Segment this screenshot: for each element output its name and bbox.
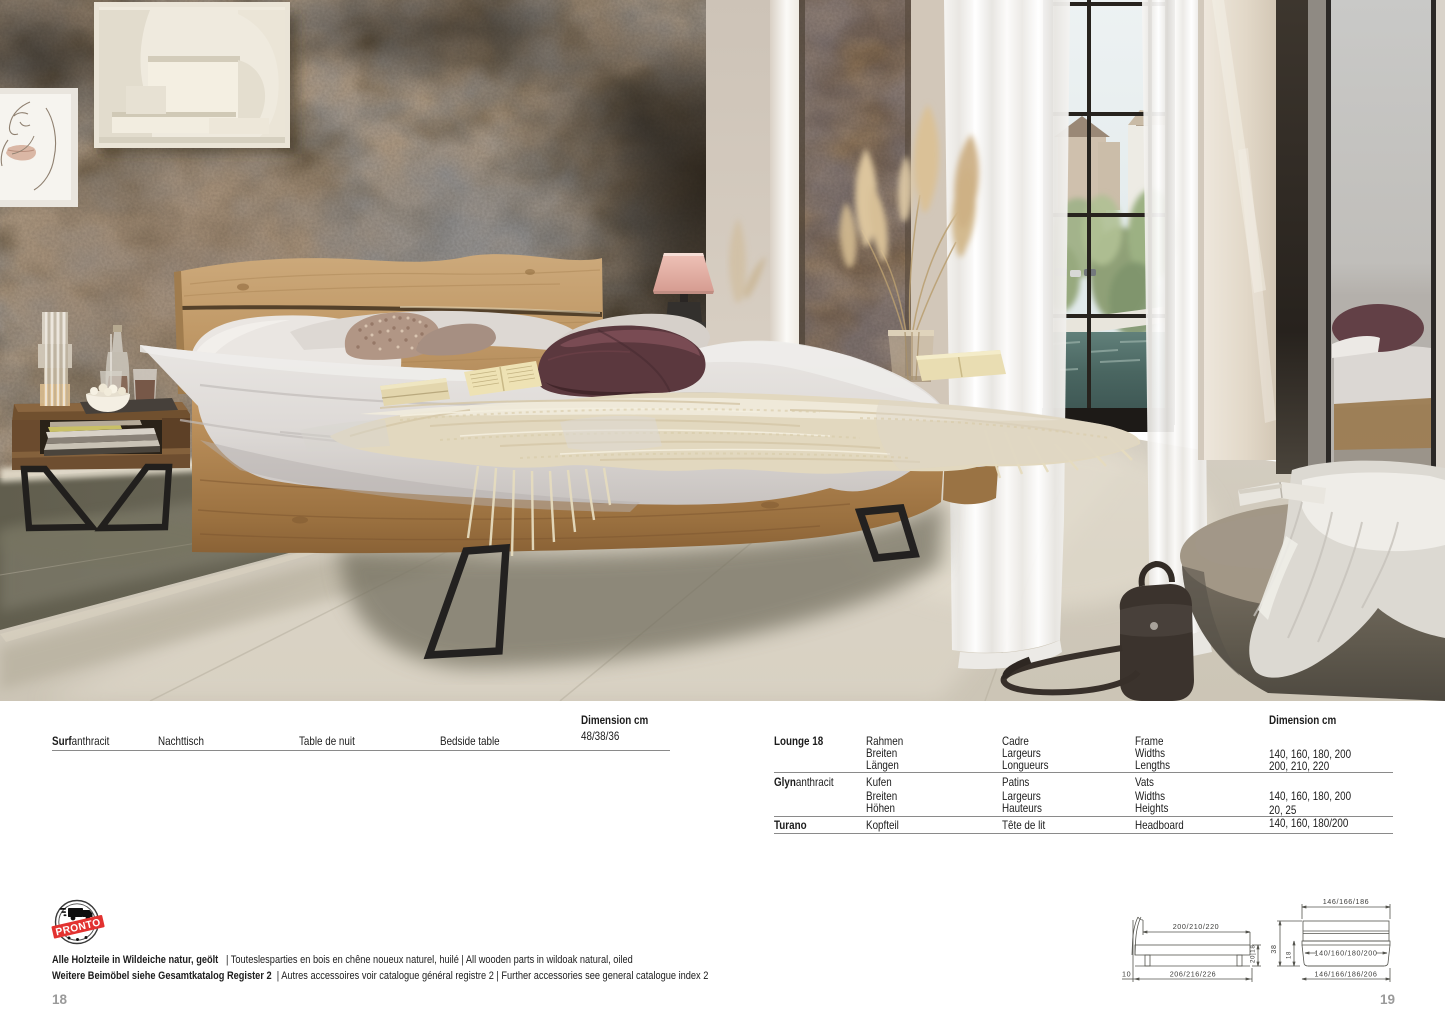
svg-text:140/160/180/200: 140/160/180/200 xyxy=(1315,949,1378,958)
svg-text:10: 10 xyxy=(1122,970,1131,979)
svg-text:206/216/226: 206/216/226 xyxy=(1170,970,1217,979)
svg-text:38: 38 xyxy=(1269,944,1278,953)
svg-text:146/166/186/206: 146/166/186/206 xyxy=(1315,970,1378,979)
svg-text:200/210/220: 200/210/220 xyxy=(1173,922,1220,931)
svg-text:146/166/186: 146/166/186 xyxy=(1323,897,1370,906)
svg-text:18: 18 xyxy=(1287,951,1293,959)
svg-text:20|18: 20|18 xyxy=(1250,945,1257,963)
